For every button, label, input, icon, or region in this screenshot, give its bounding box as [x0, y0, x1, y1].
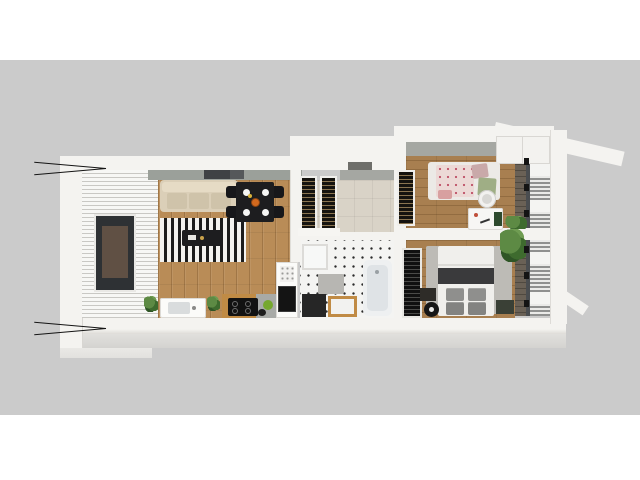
window-bracket: [524, 300, 529, 307]
lamp-bulb: [429, 307, 434, 312]
oven-door: [278, 286, 296, 312]
desk-pen: [480, 218, 490, 223]
desk: [468, 208, 503, 230]
dinner-plate: [262, 189, 269, 196]
oven-column: [276, 262, 298, 318]
closet-shelving: [402, 248, 422, 318]
kitchen-sink-basin: [168, 302, 190, 314]
coffee-table: [182, 230, 222, 246]
balcony-glass-roof: [94, 214, 136, 292]
kitchen-sink-unit: [160, 298, 206, 318]
potted-plant: [144, 296, 158, 312]
table-book: [188, 235, 196, 240]
laundry-unit: [302, 294, 326, 317]
window-bracket: [524, 158, 529, 165]
radiator: [530, 252, 550, 264]
microwave-panel: [280, 266, 294, 282]
ceiling-edge-kids: [406, 142, 496, 156]
bathtub-drain: [375, 270, 379, 274]
bed-duvet-fold: [438, 264, 494, 266]
master-bed: [438, 246, 494, 316]
wall-tv-unit: [204, 170, 244, 179]
bath-mat: [318, 274, 344, 294]
apartment-plan: [60, 112, 580, 362]
cooktop: [228, 298, 258, 316]
ceiling-edge-hall: [340, 170, 394, 180]
sofa-cushion: [189, 193, 209, 209]
dinner-plate: [262, 209, 269, 216]
window-plants-kids: [505, 216, 527, 229]
sofa-cushion: [167, 193, 187, 209]
radiator: [530, 200, 550, 212]
bedside-lamp: [424, 302, 439, 317]
desk-plant: [494, 212, 502, 226]
black-pot: [258, 309, 266, 316]
vanity-sink: [331, 299, 354, 314]
bookshelf-base: [298, 228, 340, 236]
faucet: [192, 306, 196, 310]
bed-pillow: [446, 302, 464, 315]
burner: [232, 301, 238, 307]
outer-wall-right: [550, 130, 567, 324]
bathroom-vanity: [328, 296, 357, 317]
nightstand-planter: [496, 300, 514, 314]
bookshelf: [397, 170, 415, 226]
chair-seat: [482, 194, 492, 204]
entry-door: [348, 162, 372, 170]
table-decor-gold: [200, 236, 204, 240]
bathtub: [363, 260, 392, 316]
desk-decor-red: [474, 213, 478, 217]
window-bracket: [524, 210, 529, 217]
bed-dark-runner: [438, 268, 494, 284]
window-bracket: [524, 246, 529, 253]
burner: [232, 308, 238, 314]
potted-plant: [207, 296, 220, 311]
bed-pillow: [468, 302, 486, 315]
bookshelf: [300, 176, 317, 230]
desk-chair: [478, 190, 496, 208]
shower-unit: [302, 244, 328, 270]
nightstand: [420, 288, 436, 301]
dinner-plate: [243, 209, 250, 216]
radiator: [530, 292, 550, 304]
bed-pillow: [468, 288, 486, 301]
table-decor-yellow: [248, 194, 252, 198]
tall-plant-master: [500, 228, 526, 262]
burner: [245, 308, 251, 314]
serving-bowl: [251, 198, 260, 207]
window-bracket: [524, 272, 529, 279]
radiator: [530, 164, 550, 176]
bookshelf: [320, 176, 337, 230]
window-bracket: [524, 184, 529, 191]
kids-blanket-pink: [438, 190, 452, 199]
kids-wardrobe: [496, 136, 550, 164]
front-wall-face: [60, 332, 566, 348]
wardrobe-divider: [522, 136, 523, 164]
outer-wall-left: [60, 156, 83, 348]
green-decor-sphere: [263, 300, 273, 310]
burner: [245, 301, 251, 307]
glass-roof-interior: [102, 226, 128, 278]
floorplan-render: [0, 0, 640, 480]
bed-pillow: [446, 288, 464, 301]
sofa-back: [162, 182, 236, 192]
outer-wall-bottom: [60, 318, 566, 334]
